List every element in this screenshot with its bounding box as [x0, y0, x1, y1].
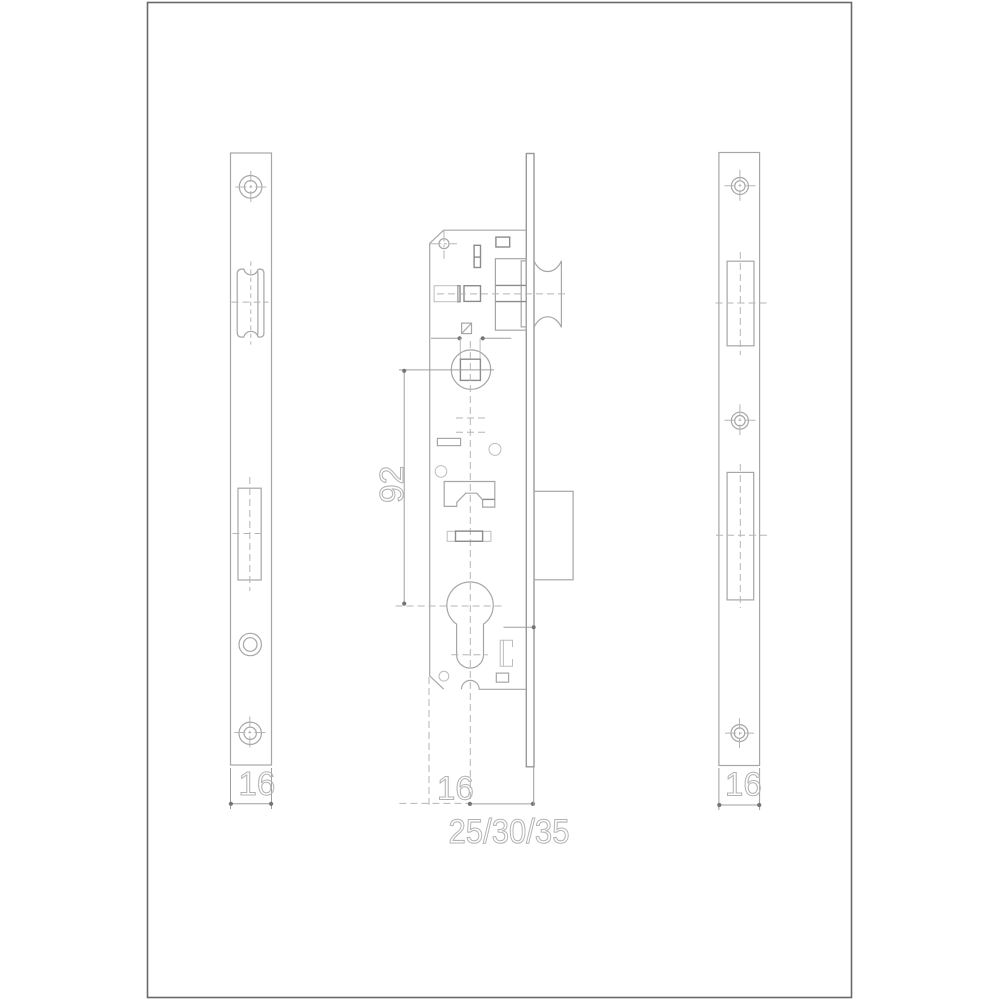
svg-text:92: 92: [374, 466, 411, 503]
svg-text:16: 16: [437, 770, 474, 807]
svg-text:25/30/35: 25/30/35: [449, 813, 570, 851]
svg-text:16: 16: [239, 765, 276, 802]
svg-text:16: 16: [725, 766, 762, 803]
